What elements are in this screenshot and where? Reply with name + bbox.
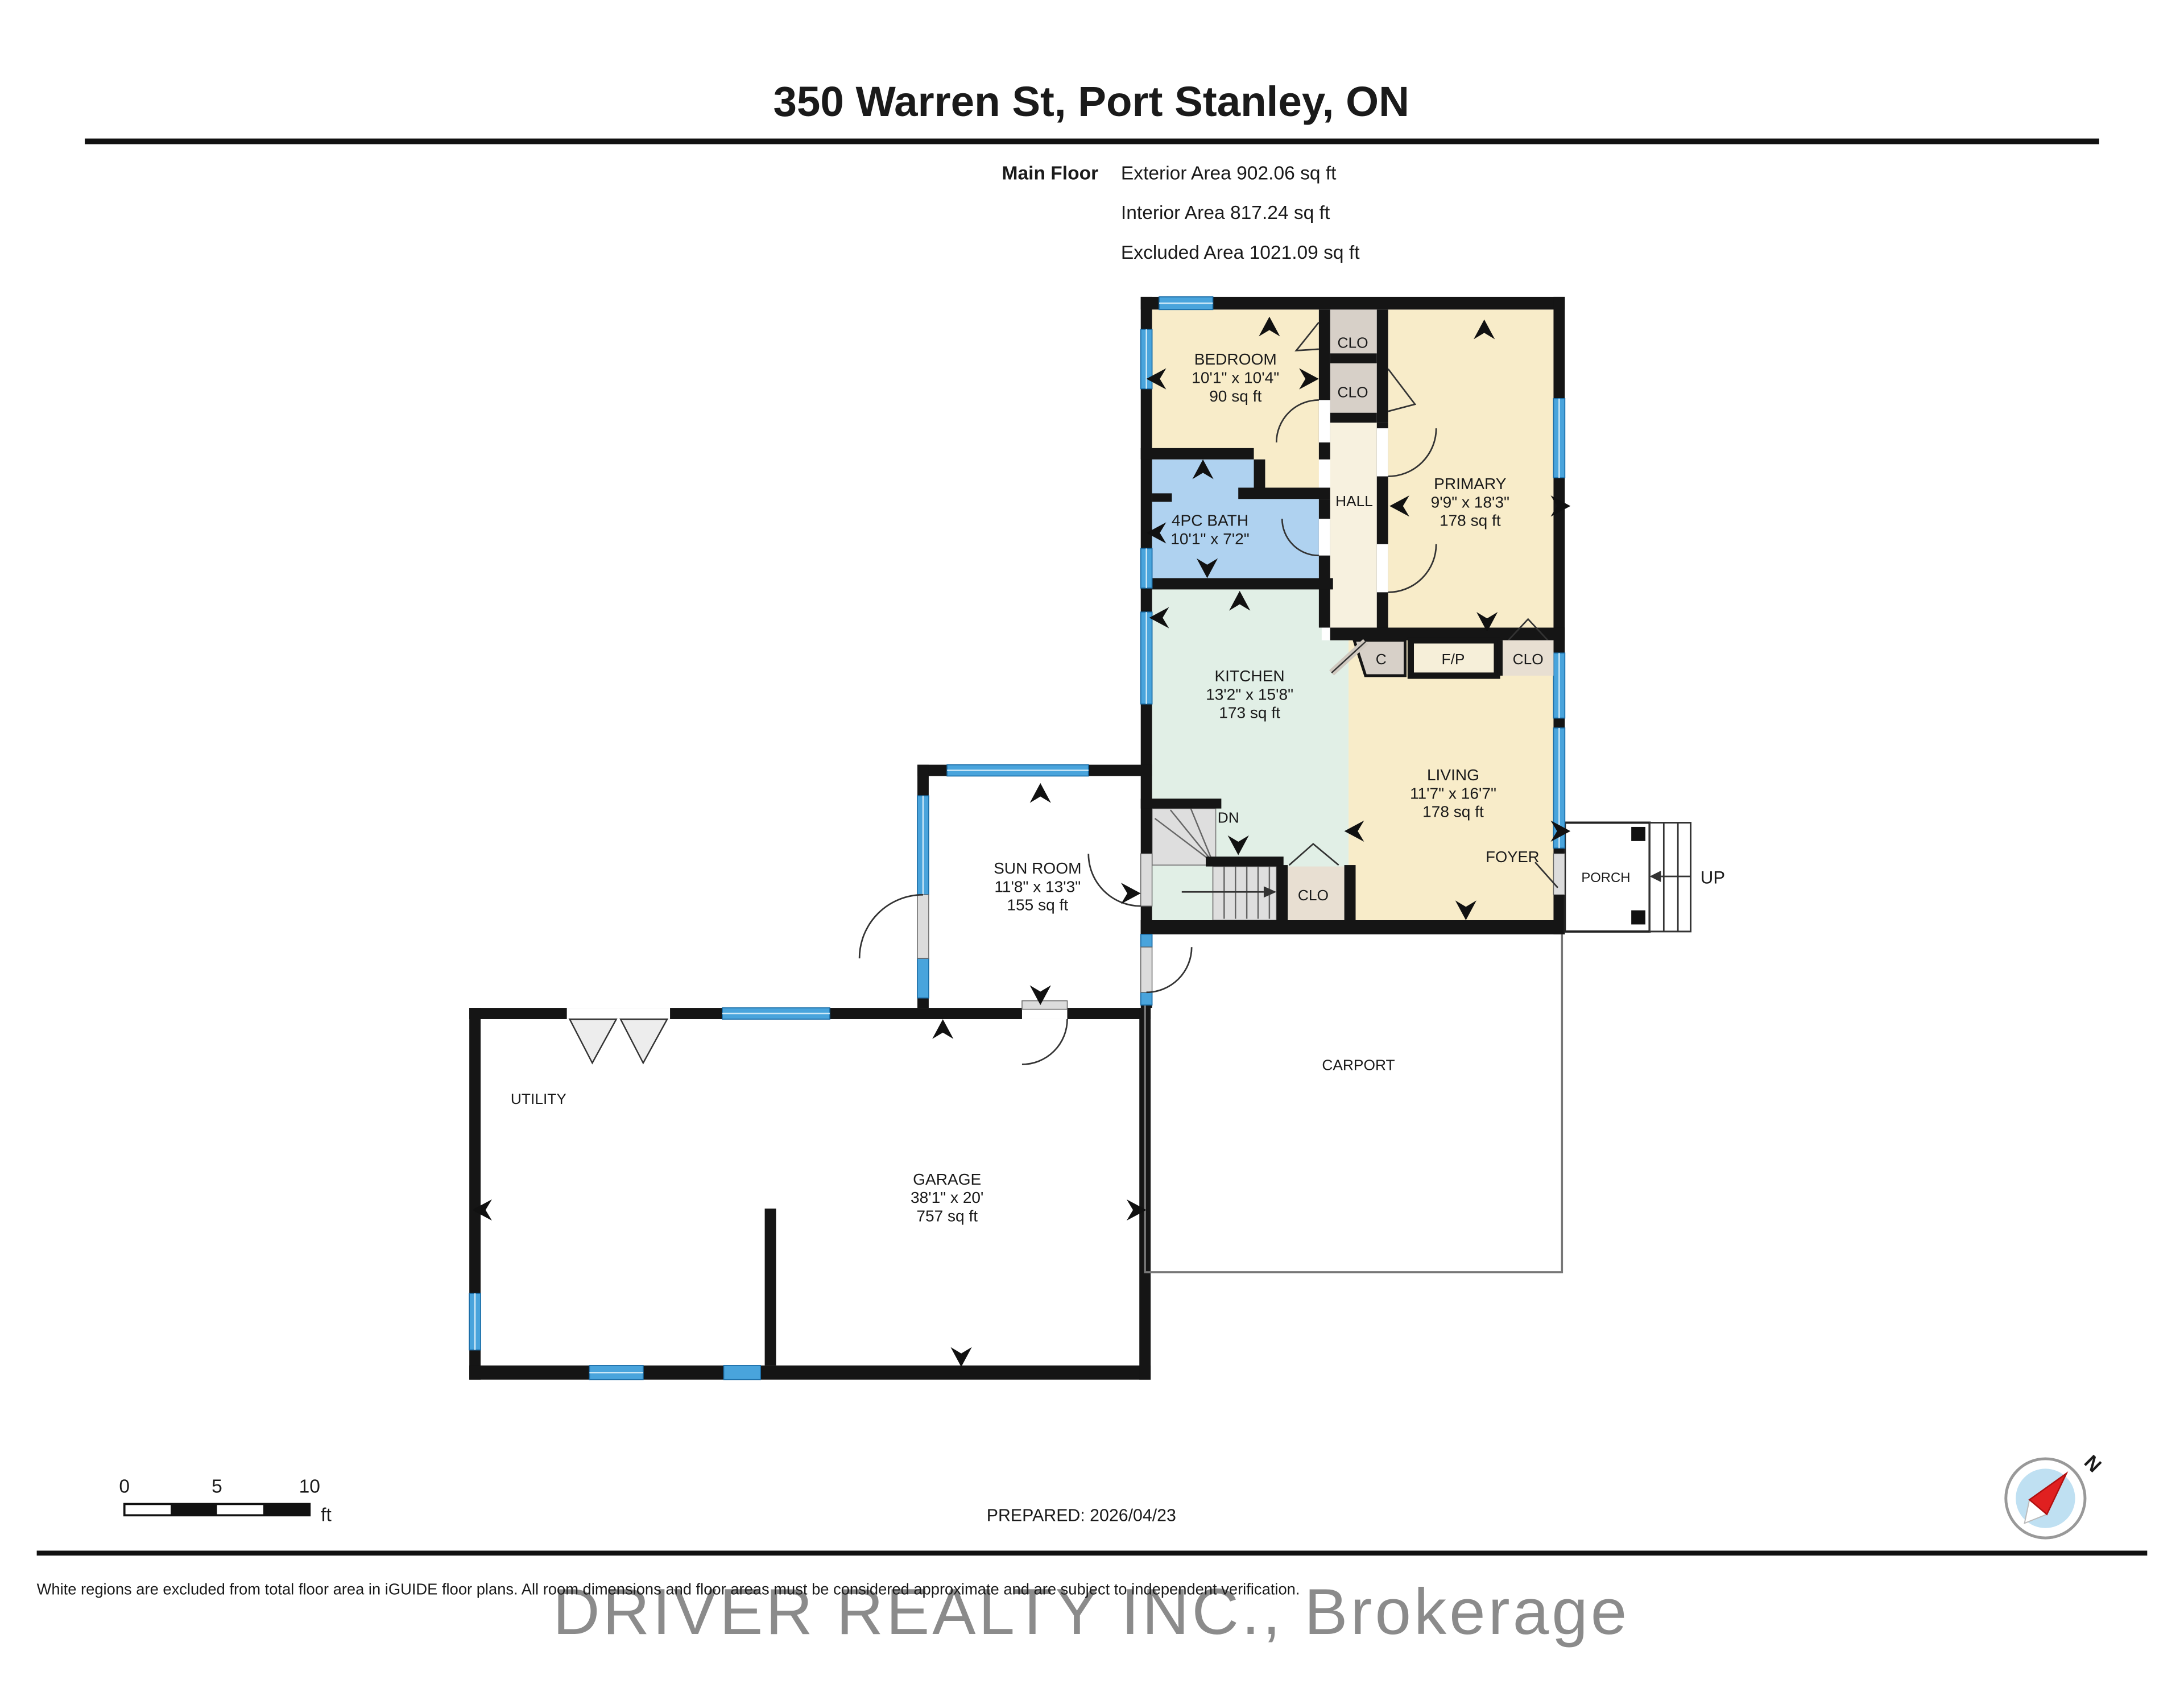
arrow-icon xyxy=(950,1347,971,1367)
window-icon xyxy=(469,1293,481,1350)
floor-label: Main Floor xyxy=(1002,163,1099,184)
title-rule xyxy=(85,139,2099,144)
garage-double-door-leaf xyxy=(621,1019,667,1063)
window-icon xyxy=(917,796,929,895)
window-icon xyxy=(1553,399,1565,478)
label-utility: UTILITY xyxy=(511,1090,566,1107)
interior-area: Interior Area 817.24 sq ft xyxy=(1121,202,1330,224)
label-closet-2: CLO xyxy=(1337,383,1368,400)
excluded-area: Excluded Area 1021.09 sq ft xyxy=(1121,242,1360,263)
garage-double-door-leaf xyxy=(570,1019,617,1063)
room-label-bath: 4PC BATH 10'1" x 7'2" xyxy=(1170,512,1249,548)
footer-rule xyxy=(37,1550,2148,1555)
front-door xyxy=(1553,854,1565,895)
svg-text:178 sq ft: 178 sq ft xyxy=(1422,803,1484,821)
exterior-area: Exterior Area 902.06 sq ft xyxy=(1121,163,1337,184)
svg-text:38'1" x 20': 38'1" x 20' xyxy=(911,1189,983,1206)
label-fireplace: F/P xyxy=(1442,651,1465,668)
label-up: UP xyxy=(1701,867,1725,887)
window-icon xyxy=(917,958,929,998)
porch-post-bottom xyxy=(1631,911,1645,925)
svg-text:155 sq ft: 155 sq ft xyxy=(1007,896,1068,914)
scale-zero: 0 xyxy=(119,1476,130,1497)
svg-text:11'7" x 16'7": 11'7" x 16'7" xyxy=(1410,784,1496,802)
window-icon xyxy=(589,1366,643,1380)
svg-text:GARAGE: GARAGE xyxy=(913,1170,981,1188)
window-icon xyxy=(1141,934,1152,947)
room-label-primary: PRIMARY 9'9" x 18'3" 178 sq ft xyxy=(1431,475,1509,529)
scale-five: 5 xyxy=(212,1476,222,1497)
label-hall: HALL xyxy=(1335,493,1373,510)
window-icon xyxy=(1141,612,1152,704)
scale-bar: 0 5 10 ft xyxy=(119,1476,332,1526)
arrow-icon xyxy=(1030,783,1051,803)
label-stairs-dn: DN xyxy=(1218,809,1239,826)
sunroom-exterior-door xyxy=(917,895,929,958)
prepared-date: PREPARED: 2026/04/23 xyxy=(987,1506,1176,1525)
svg-text:173 sq ft: 173 sq ft xyxy=(1219,704,1280,722)
sunroom-garage-door xyxy=(1022,1001,1068,1010)
label-closet-fp: CLO xyxy=(1513,651,1544,668)
label-foyer: FOYER xyxy=(1486,848,1539,866)
window-icon xyxy=(1141,992,1152,1005)
compass-north: N xyxy=(2080,1451,2106,1477)
label-closet-c: C xyxy=(1376,651,1387,668)
label-closet-stairs: CLO xyxy=(1298,887,1329,904)
porch-post-top xyxy=(1631,827,1645,841)
svg-text:4PC BATH: 4PC BATH xyxy=(1172,512,1248,529)
arrow-icon xyxy=(932,1019,953,1039)
svg-text:9'9" x 18'3": 9'9" x 18'3" xyxy=(1431,493,1509,511)
floor-plan-page: 350 Warren St, Port Stanley, ON Main Flo… xyxy=(0,0,2184,1688)
sunroom-house-door xyxy=(1141,854,1152,906)
svg-text:178 sq ft: 178 sq ft xyxy=(1440,512,1501,529)
disclaimer-text: White regions are excluded from total fl… xyxy=(37,1581,1300,1598)
scale-unit: ft xyxy=(321,1504,332,1525)
svg-text:10'1" x 10'4": 10'1" x 10'4" xyxy=(1192,369,1279,387)
compass-icon: N xyxy=(2006,1451,2106,1538)
carport-outline xyxy=(1145,934,1562,1272)
window-icon xyxy=(722,1008,830,1019)
label-closet-1: CLO xyxy=(1337,334,1368,351)
svg-text:SUN ROOM: SUN ROOM xyxy=(994,859,1081,877)
label-porch: PORCH xyxy=(1581,870,1630,886)
svg-text:90 sq ft: 90 sq ft xyxy=(1209,387,1261,405)
svg-text:LIVING: LIVING xyxy=(1427,766,1479,784)
svg-text:BEDROOM: BEDROOM xyxy=(1194,350,1277,368)
svg-text:KITCHEN: KITCHEN xyxy=(1214,667,1284,685)
svg-text:10'1" x 7'2": 10'1" x 7'2" xyxy=(1170,530,1249,548)
header: 350 Warren St, Port Stanley, ON Main Flo… xyxy=(85,78,2099,263)
svg-text:13'2" x 15'8": 13'2" x 15'8" xyxy=(1206,685,1293,703)
scale-ten: 10 xyxy=(299,1476,320,1497)
footer: 0 5 10 ft PREPARED: 2026/04/23 DRIVER RE… xyxy=(37,1451,2148,1648)
svg-text:PRIMARY: PRIMARY xyxy=(1434,475,1507,493)
room-label-sunroom: SUN ROOM 11'8" x 13'3" 155 sq ft xyxy=(994,859,1081,914)
sunroom-carport-door xyxy=(1141,947,1152,992)
room-primary xyxy=(1388,309,1554,627)
window-icon xyxy=(1553,653,1565,718)
room-hall xyxy=(1330,423,1377,627)
window-icon xyxy=(947,765,1089,776)
room-label-garage: GARAGE 38'1" x 20' 757 sq ft xyxy=(911,1170,983,1225)
svg-text:11'8" x 13'3": 11'8" x 13'3" xyxy=(994,878,1081,895)
arrow-icon xyxy=(1121,883,1141,904)
window-icon xyxy=(1141,548,1152,588)
floor-plan-svg: 350 Warren St, Port Stanley, ON Main Flo… xyxy=(0,0,2184,1688)
window-icon xyxy=(724,1366,761,1380)
svg-text:757 sq ft: 757 sq ft xyxy=(916,1207,978,1224)
label-carport: CARPORT xyxy=(1322,1056,1395,1073)
page-title: 350 Warren St, Port Stanley, ON xyxy=(773,78,1409,125)
window-icon xyxy=(1159,297,1213,309)
